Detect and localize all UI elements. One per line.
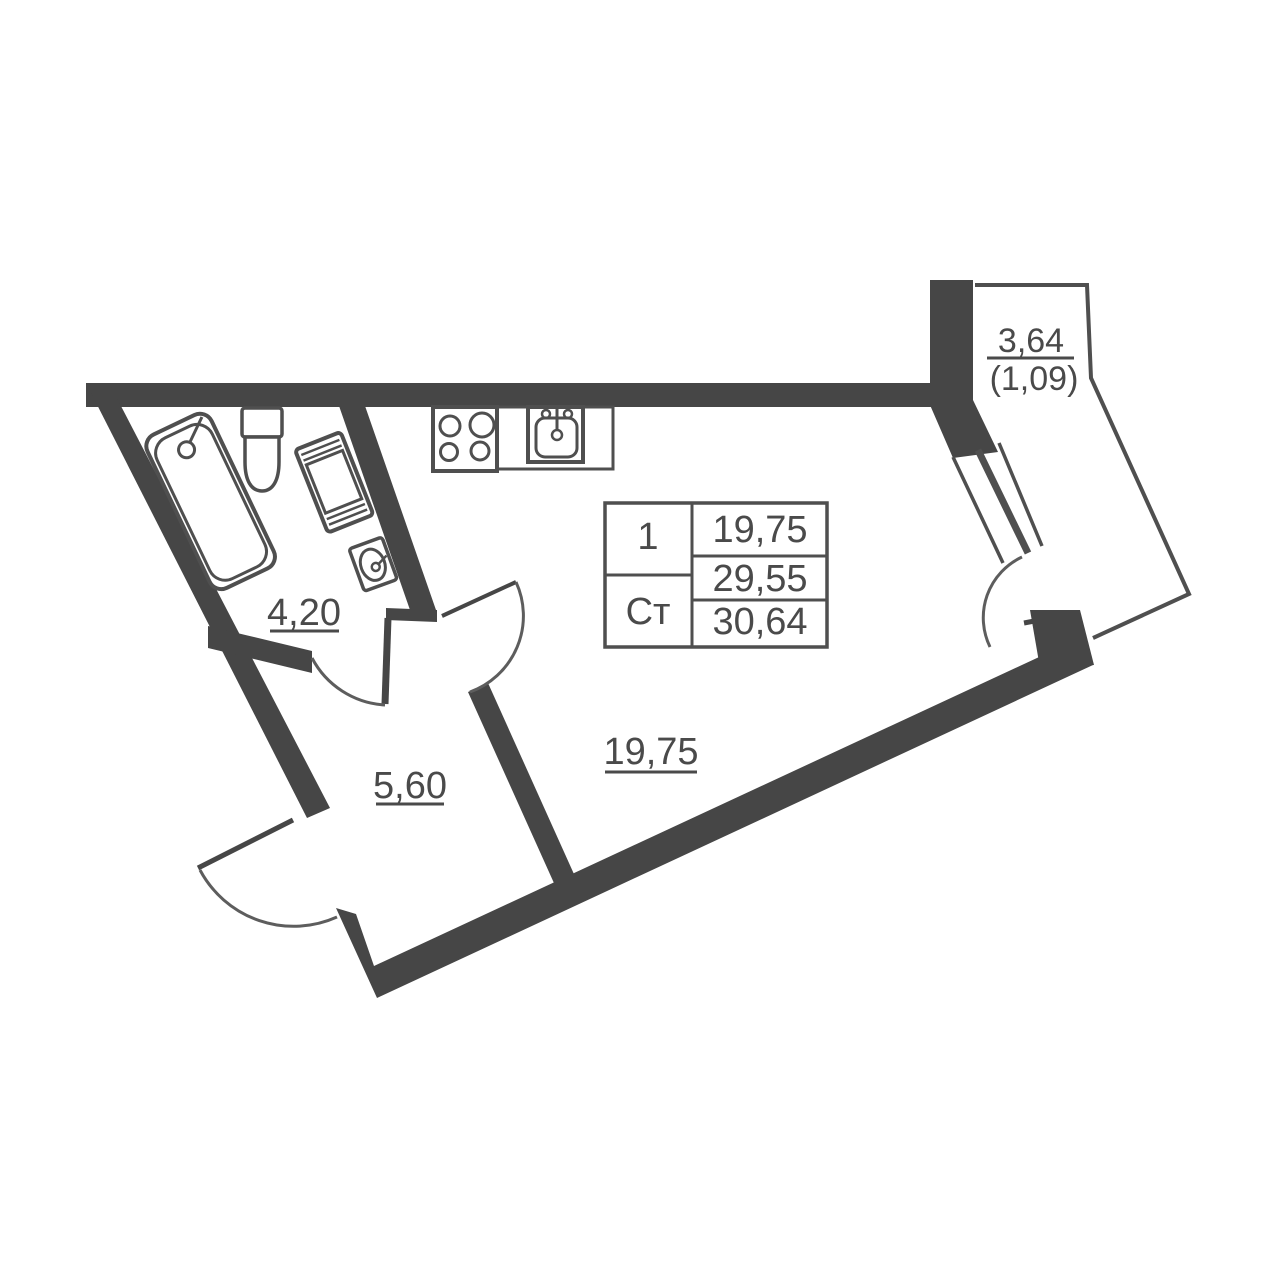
stove: [433, 407, 497, 471]
wall-bottom: [336, 638, 1093, 998]
toilet-tank: [242, 408, 282, 437]
table-living-area: 19,75: [712, 509, 807, 551]
hallway-area-label: 5,60: [373, 765, 447, 807]
walls: [86, 280, 1094, 998]
table-area-no-balcony: 29,55: [712, 558, 807, 600]
kitchen-sink: [528, 407, 583, 462]
kitchen: [433, 407, 613, 471]
balcony-window: [953, 443, 1042, 563]
entrance-door-leaf: [198, 820, 293, 868]
table-room-count: 1: [637, 516, 658, 558]
balcony-door-arc: [983, 557, 1022, 647]
table-apartment-type: Ст: [626, 591, 671, 633]
living-room-area-label: 19,75: [603, 731, 698, 773]
info-table: 1 Ст 19,75 29,55 30,64: [605, 503, 827, 647]
toilet-bowl: [245, 437, 279, 491]
balcony-area-coefficient-label: (1,09): [990, 360, 1079, 398]
toilet: [242, 408, 282, 491]
wall-partition-hall-room: [468, 683, 578, 892]
window-line-frame: [978, 450, 1028, 553]
entrance-door: [198, 820, 337, 926]
room-door: [442, 582, 523, 692]
bathroom-area-label: 4,20: [267, 592, 341, 634]
balcony-area-label: 3,64: [998, 322, 1064, 360]
room-door-leaf: [442, 582, 516, 616]
wall-bathroom-foot: [386, 608, 437, 622]
stove-body: [433, 407, 497, 471]
bathroom-door-leaf: [385, 618, 388, 704]
floor-plan-page: 1 Ст 19,75 29,55 30,64 4,20 5,60 19,75 3…: [0, 0, 1280, 1280]
floor-plan: 1 Ст 19,75 29,55 30,64 4,20 5,60 19,75 3…: [0, 0, 1280, 1280]
bathroom-door-arc: [312, 658, 385, 705]
window-line-inner: [953, 457, 1003, 563]
table-total-area: 30,64: [712, 601, 807, 643]
wall-top: [86, 383, 933, 407]
entrance-door-arc: [200, 870, 337, 926]
wall-balcony-pier: [930, 280, 998, 458]
